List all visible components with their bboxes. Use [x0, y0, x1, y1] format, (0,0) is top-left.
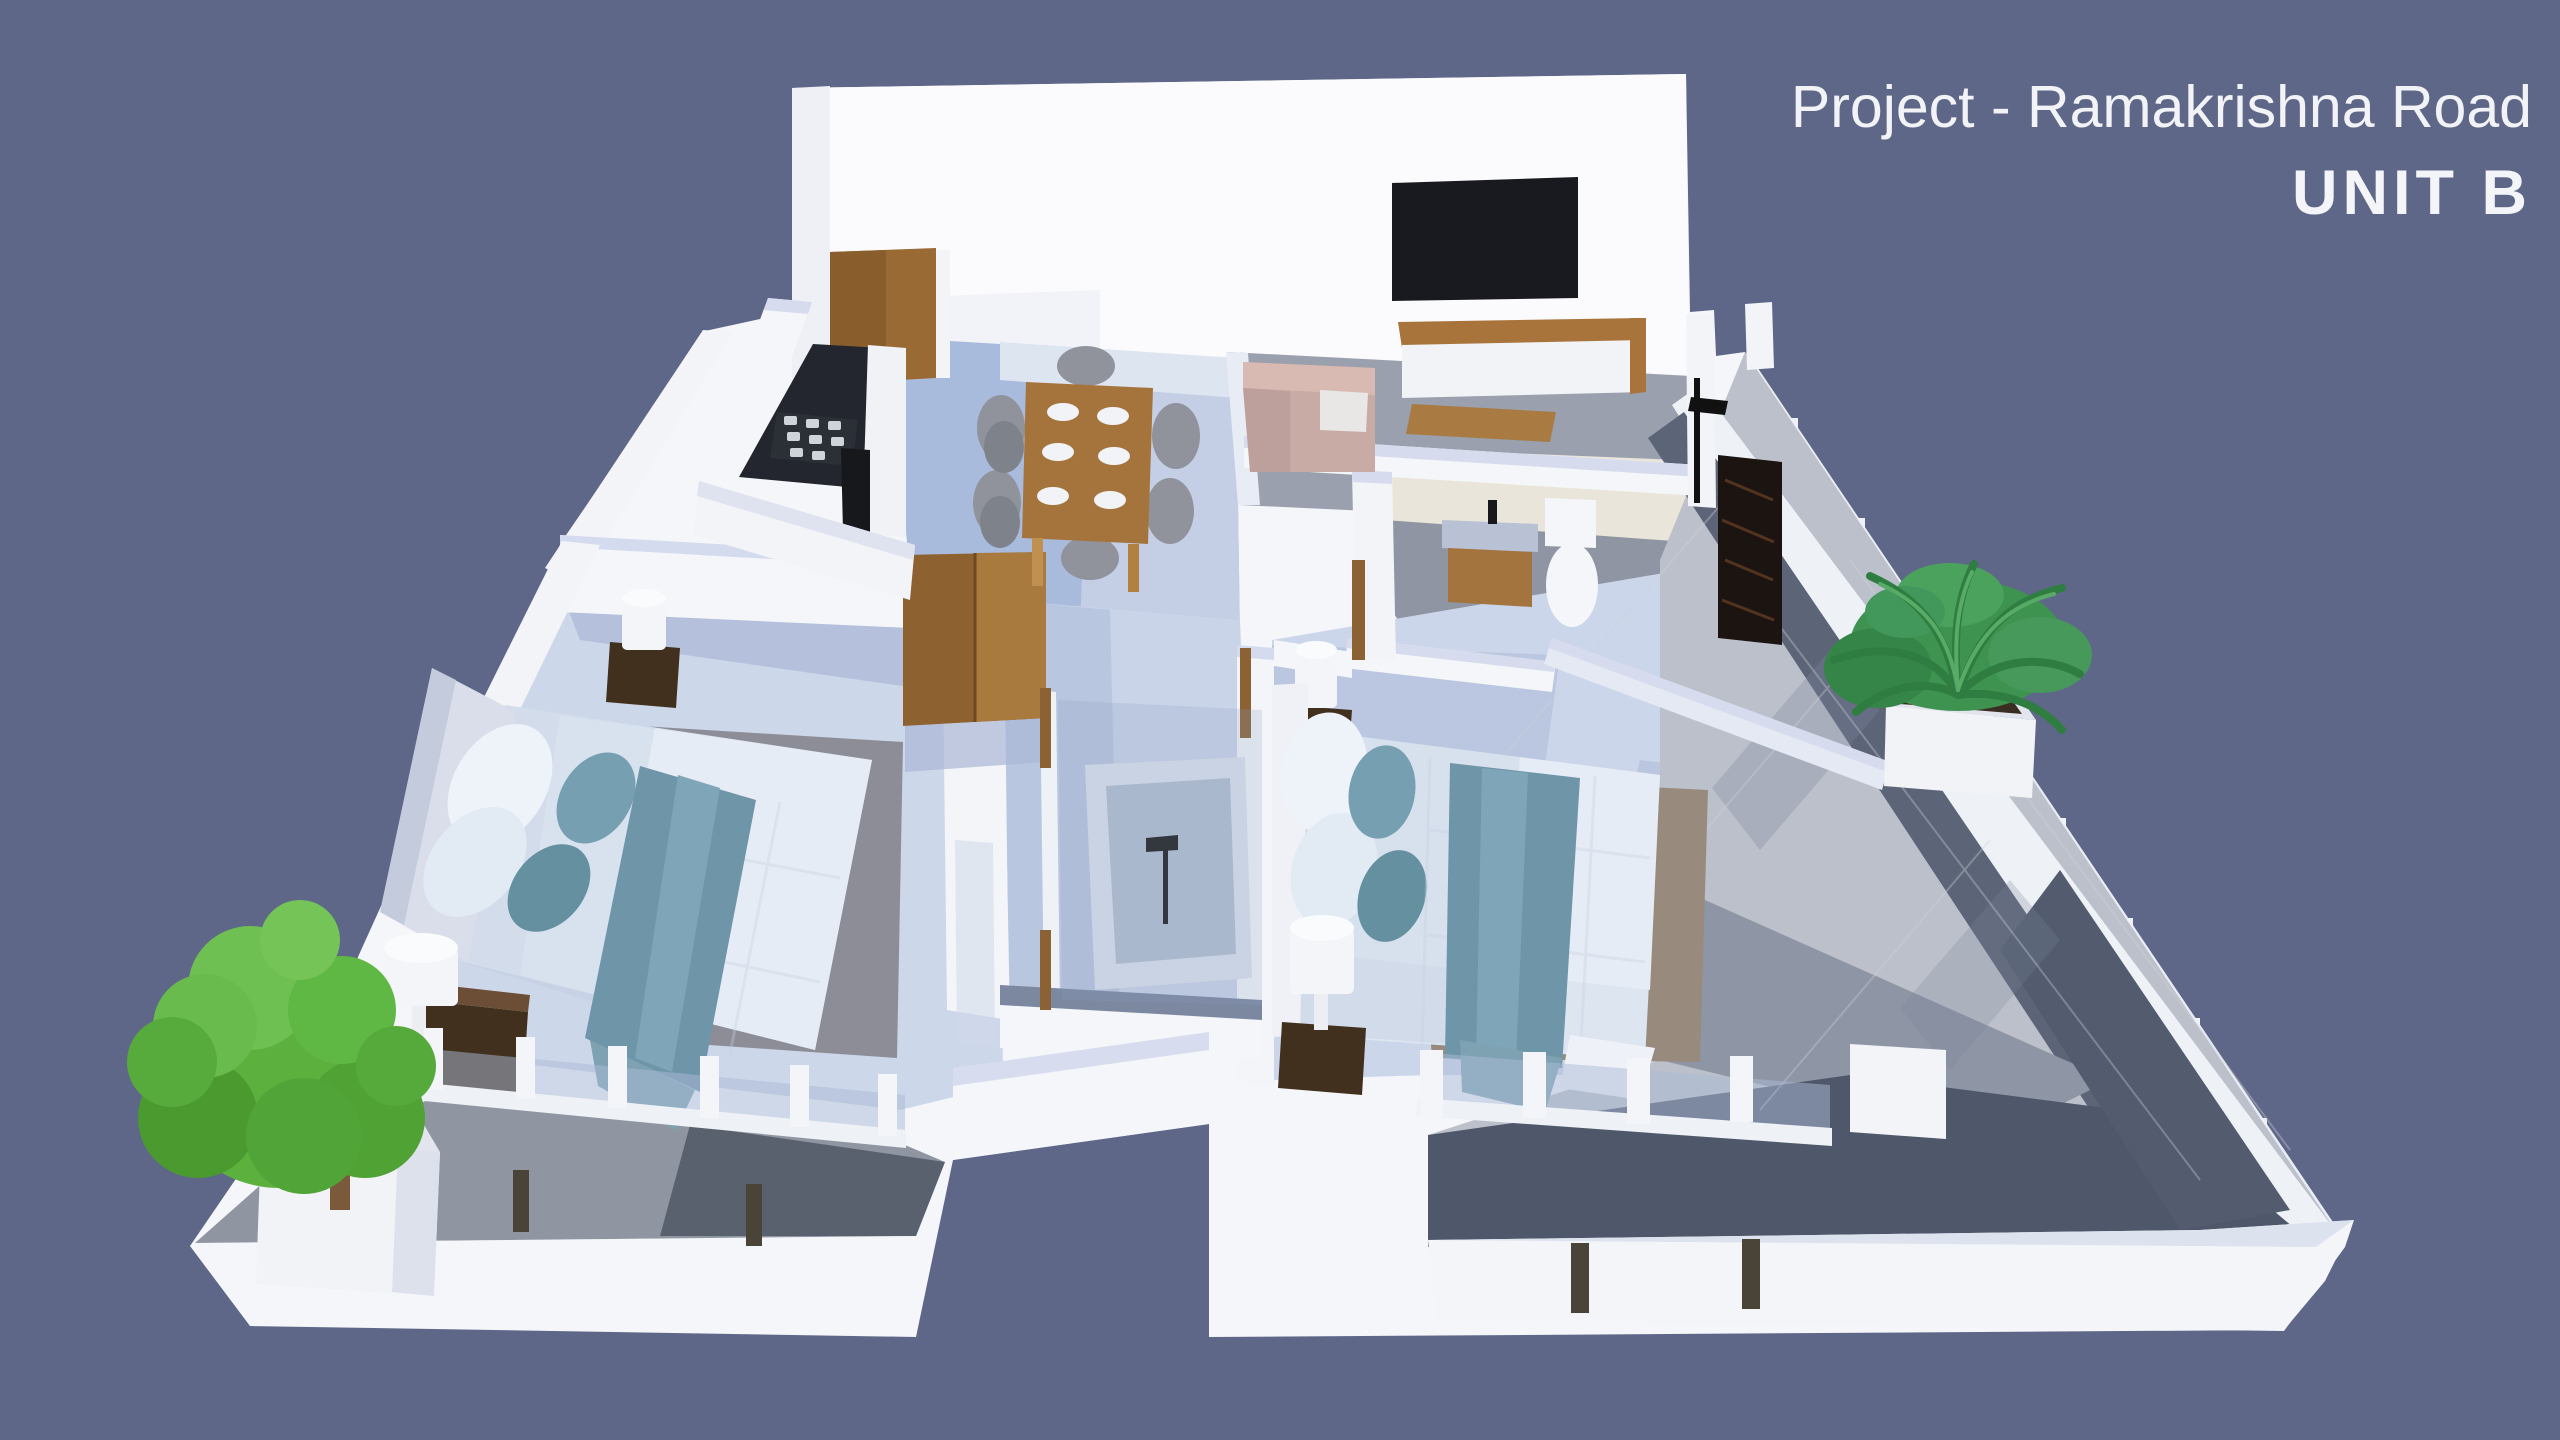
svg-text:UNIT B: UNIT B [2292, 158, 2532, 228]
svg-text:Project - Ramakrishna Road: Project - Ramakrishna Road [1791, 74, 2532, 140]
